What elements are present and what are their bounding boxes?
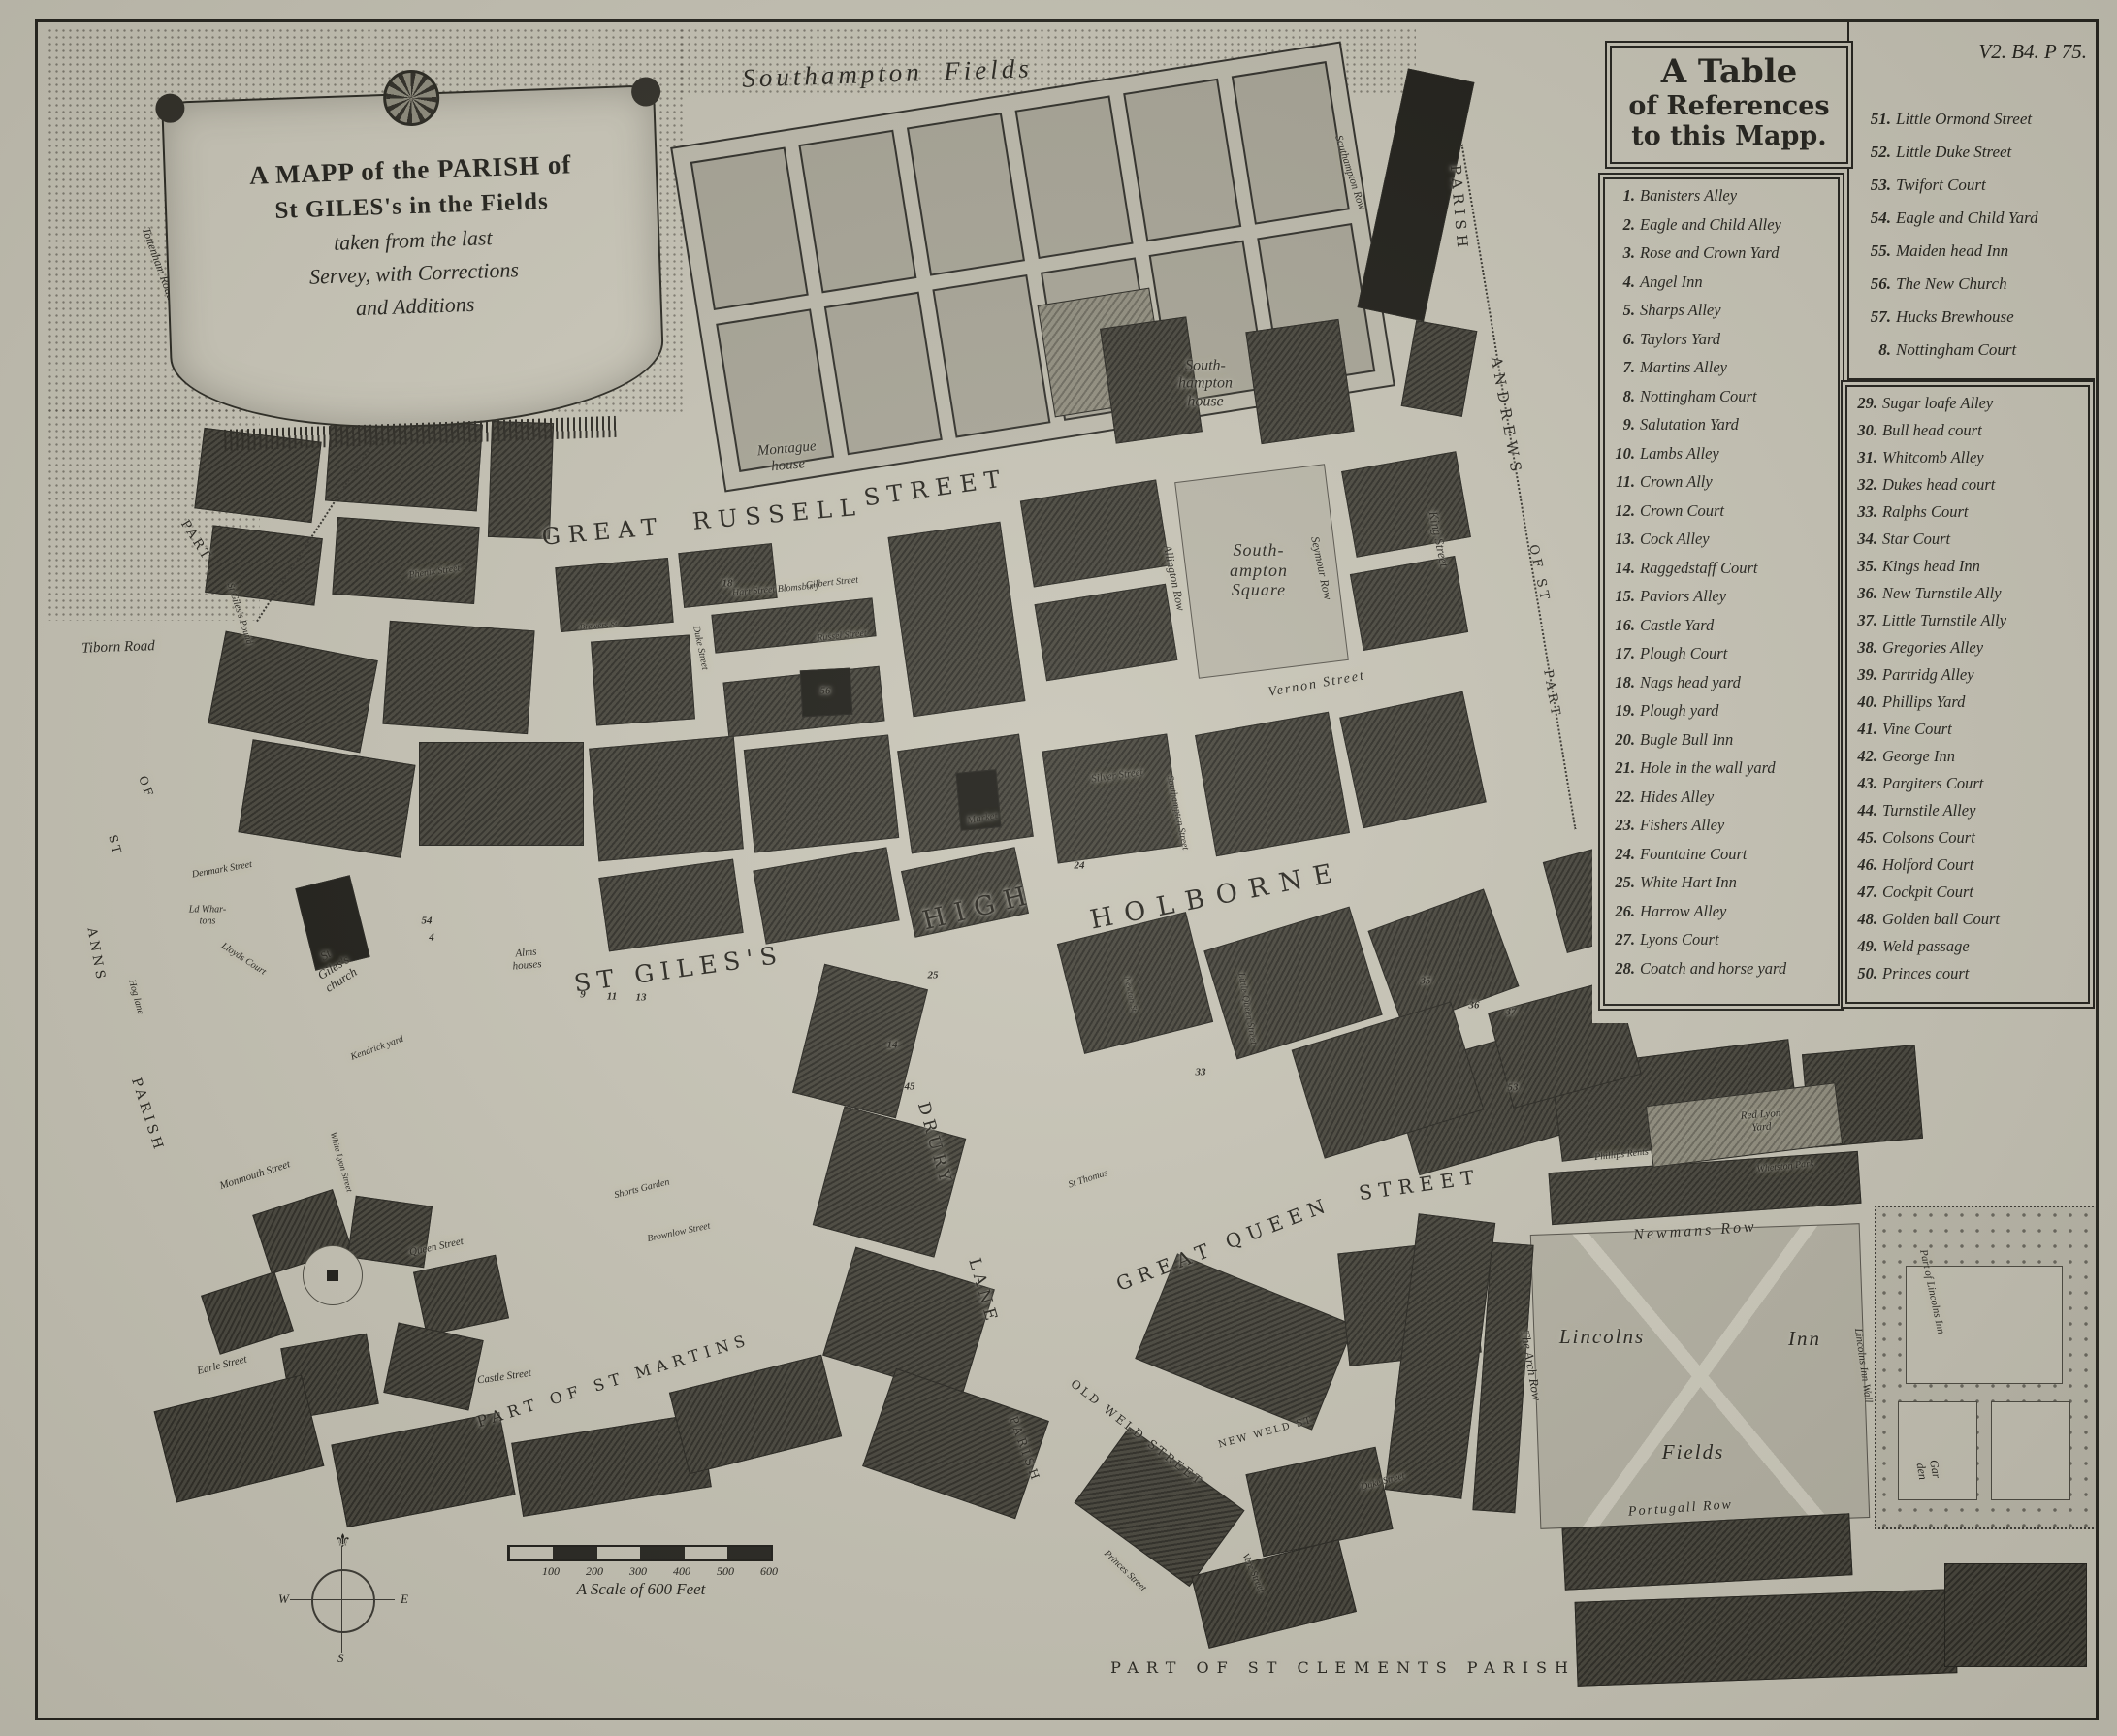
map-label-lincolns: Lincolns [1559, 1325, 1645, 1348]
reference-item: 20.Bugle Bull Inn [1612, 730, 1837, 759]
reference-item-label: Holford Court [1882, 855, 1973, 875]
reference-item: 25.White Hart Inn [1612, 873, 1837, 902]
reference-item: 52.Little Duke Street [1868, 143, 2083, 176]
building-block [589, 736, 744, 862]
reference-item-label: Hides Alley [1640, 788, 1714, 807]
map-label-hog-lane: Hog lane [126, 979, 146, 1016]
reference-item: 10.Lambs Alley [1612, 444, 1837, 473]
reference-item-label: Castle Yard [1640, 616, 1714, 635]
reference-item-label: Fountaine Court [1640, 845, 1747, 864]
reference-item: 37.Little Turnstile Ally [1854, 611, 2087, 638]
reference-item: 53.Twifort Court [1868, 176, 2083, 209]
reference-item-number: 39. [1854, 665, 1877, 685]
reference-item-label: Maiden head Inn [1896, 241, 2008, 261]
map-label-castle-street: Castle Street [476, 1367, 531, 1387]
garden-parterre [1015, 95, 1134, 259]
reference-item: 9.Salutation Yard [1612, 415, 1837, 444]
reference-item: 48.Golden ball Court [1854, 910, 2087, 937]
compass-west-label: W [278, 1591, 289, 1607]
reference-item-number: 46. [1854, 855, 1877, 875]
reference-item-number: 29. [1854, 394, 1877, 413]
reference-item-number: 25. [1612, 873, 1635, 892]
reference-item-number: 28. [1612, 959, 1635, 979]
reference-item: 46.Holford Court [1854, 855, 2087, 883]
reference-item-label: Turnstile Alley [1882, 801, 1975, 820]
mask-ornament-icon [382, 69, 440, 127]
reference-item: 29.Sugar loafe Alley [1854, 394, 2087, 421]
map-label-37: 37 [1506, 1007, 1517, 1019]
building-block [1350, 556, 1468, 651]
reference-table: V2. B4. P 75. A Table of References to t… [1592, 22, 2095, 1023]
building-block [419, 742, 584, 846]
reference-item: 35.Kings head Inn [1854, 557, 2087, 584]
map-label-brewers-st: Brewers St [579, 619, 618, 632]
map-label-25: 25 [928, 970, 939, 982]
reference-item: 38.Gregories Alley [1854, 638, 2087, 665]
reference-item-label: Princes court [1882, 964, 1969, 983]
reference-item: 34.Star Court [1854, 530, 2087, 557]
reference-item-number: 22. [1612, 788, 1635, 807]
reference-item-label: Lambs Alley [1640, 444, 1719, 464]
reference-item-number: 10. [1612, 444, 1635, 464]
garden-parterre [1123, 79, 1241, 242]
map-label-white-lyon-street: White Lyon Street [328, 1131, 355, 1193]
reference-list-1-28: 1.Banisters Alley2.Eagle and Child Alley… [1598, 173, 1844, 1011]
reference-item-label: Crown Ally [1640, 472, 1713, 492]
scale-caption: A Scale of 600 Feet [507, 1580, 775, 1599]
building-block [205, 525, 323, 605]
reference-item-number: 2. [1612, 215, 1635, 235]
reference-item-label: New Turnstile Ally [1882, 584, 2002, 603]
reference-item-label: Pargiters Court [1882, 774, 1983, 793]
reference-item: 50.Princes court [1854, 964, 2087, 991]
reference-item-number: 34. [1854, 530, 1877, 549]
building-block [792, 964, 928, 1119]
map-label-36: 36 [1469, 1000, 1480, 1013]
building-block [888, 522, 1026, 717]
seven-dials-circus [303, 1245, 363, 1305]
reference-item-number: 26. [1612, 902, 1635, 921]
map-label-gilbert-street: Gilbert Street [805, 574, 858, 591]
plate-reference: V2. B4. P 75. [1912, 40, 2087, 64]
building-block [744, 734, 899, 852]
reference-item-label: Banisters Alley [1640, 186, 1737, 206]
reference-item-label: Rose and Crown Yard [1640, 243, 1780, 263]
compass-north-fleur-icon: ⚜ [335, 1530, 351, 1553]
reference-item: 40.Phillips Yard [1854, 692, 2087, 720]
reference-item-number: 23. [1612, 816, 1635, 835]
map-label-24: 24 [1075, 860, 1085, 873]
reference-item: 14.Raggedstaff Court [1612, 559, 1837, 588]
map-label-earle-street: Earle Street [196, 1354, 248, 1378]
reference-item-label: Bugle Bull Inn [1640, 730, 1733, 750]
compass-circle [311, 1569, 375, 1633]
map-label-russell: RUSSELL [691, 495, 864, 536]
reference-item: 8.Nottingham Court [1612, 387, 1837, 416]
building-block [1135, 1253, 1354, 1430]
garden-parterre [1232, 61, 1350, 225]
reference-item-label: Little Turnstile Ally [1882, 611, 2006, 630]
reference-item-number: 17. [1612, 644, 1635, 663]
reference-item-number: 15. [1612, 587, 1635, 606]
reference-item-label: Star Court [1882, 530, 1950, 549]
compass-axis [290, 1599, 395, 1600]
reference-item-label: Crown Court [1640, 501, 1724, 521]
reference-item-number: 18. [1612, 673, 1635, 692]
map-label-tiborn-road: Tiborn Road [81, 638, 155, 658]
map-label-33: 33 [1196, 1067, 1206, 1079]
building-block [753, 847, 899, 944]
map-label-montague-house: Montague house [756, 438, 818, 477]
reference-item: 41.Vine Court [1854, 720, 2087, 747]
reference-item-number: 14. [1612, 559, 1635, 578]
reference-item-label: Nottingham Court [1896, 340, 2016, 360]
map-label-denmark-street: Denmark Street [191, 859, 253, 881]
reference-item: 6.Taylors Yard [1612, 330, 1837, 359]
scale-tick-label: 200 [580, 1564, 609, 1579]
map-label-45: 45 [905, 1081, 915, 1094]
reference-item-label: Hucks Brewhouse [1896, 307, 2014, 327]
reference-item-label: Phillips Yard [1882, 692, 1965, 712]
reference-item-number: 45. [1854, 828, 1877, 848]
building-block [711, 597, 876, 653]
reference-item-number: 27. [1612, 930, 1635, 949]
reference-item-label: Fishers Alley [1640, 816, 1724, 835]
reference-item-label: Sharps Alley [1640, 301, 1721, 320]
building-block [598, 859, 743, 952]
reference-item: 39.Partridg Alley [1854, 665, 2087, 692]
reference-item-label: Coatch and horse yard [1640, 959, 1786, 979]
lincolns-inn-fields-green [1530, 1223, 1870, 1529]
compass-south-label: S [337, 1651, 344, 1666]
reference-item: 56.The New Church [1868, 274, 2083, 307]
map-label-anns: ANNS [83, 927, 108, 984]
garden-parterre [798, 130, 916, 294]
reference-item: 47.Cockpit Court [1854, 883, 2087, 910]
scale-tick-label: 600 [754, 1564, 784, 1579]
reference-table-title: A Table of References to this Mapp. [1605, 41, 1853, 169]
reference-item-label: Little Duke Street [1896, 143, 2011, 162]
map-label-great: GREAT [541, 514, 666, 552]
reference-item-label: Nags head yard [1640, 673, 1741, 692]
building-block [383, 1322, 483, 1410]
reference-item-label: Vine Court [1882, 720, 1952, 739]
reference-item: 2.Eagle and Child Alley [1612, 215, 1837, 244]
reference-item: 57.Hucks Brewhouse [1868, 307, 2083, 340]
reference-item-number: 40. [1854, 692, 1877, 712]
reference-item-number: 44. [1854, 801, 1877, 820]
reference-item: 13.Cock Alley [1612, 530, 1837, 559]
building-block [1245, 319, 1354, 444]
map-label-vernon-street: Vernon Street [1267, 668, 1367, 700]
reference-item-number: 4. [1612, 273, 1635, 292]
building-block [1944, 1563, 2087, 1667]
building-block [1401, 320, 1478, 417]
reference-item-label: Kings head Inn [1882, 557, 1980, 576]
reference-item-number: 32. [1854, 475, 1877, 495]
garden-parterre [690, 146, 809, 310]
reference-item-label: Ralphs Court [1882, 502, 1968, 522]
reference-item-number: 36. [1854, 584, 1877, 603]
map-label-andrews: ANDREWS [1488, 355, 1525, 478]
reference-item-number: 31. [1854, 448, 1877, 467]
map-label-of: OF [135, 774, 155, 800]
reference-item: 19.Plough yard [1612, 701, 1837, 730]
reference-item-number: 35. [1854, 557, 1877, 576]
map-label-st-giles-s: ST GILES'S [572, 942, 785, 999]
parish-boundary-line [1461, 145, 1577, 830]
building-block [154, 1374, 325, 1502]
map-label-parish: PARISH [128, 1076, 167, 1154]
reference-item-number: 41. [1854, 720, 1877, 739]
reference-item-label: Taylors Yard [1640, 330, 1720, 349]
building-block [1341, 451, 1471, 557]
reference-item-number: 7. [1612, 358, 1635, 377]
map-label-shorts-garden: Shorts Garden [613, 1176, 670, 1201]
reference-item-label: Bull head court [1882, 421, 1982, 440]
map-label-35: 35 [1421, 976, 1431, 988]
reference-list-29-50: 29.Sugar loafe Alley30.Bull head court31… [1841, 380, 2095, 1009]
table-title-line: of References [1607, 91, 1851, 121]
building-block [1057, 912, 1213, 1054]
reference-item-label: George Inn [1882, 747, 1955, 766]
reference-item-number: 50. [1854, 964, 1877, 983]
reference-item: 22.Hides Alley [1612, 788, 1837, 817]
reference-item-label: Cockpit Court [1882, 883, 1973, 902]
reference-item: 11.Crown Ally [1612, 472, 1837, 501]
reference-item-number: 53. [1868, 176, 1891, 195]
reference-item-label: Whitcomb Alley [1882, 448, 1984, 467]
reference-item-label: Little Ormond Street [1896, 110, 2032, 129]
reference-item-number: 37. [1854, 611, 1877, 630]
reference-item: 3.Rose and Crown Yard [1612, 243, 1837, 273]
reference-item: 36.New Turnstile Ally [1854, 584, 2087, 611]
reference-item-number: 12. [1612, 501, 1635, 521]
title-cartouche: A MAPP of the PARISH of St GILES's in th… [161, 84, 666, 435]
reference-item-number: 20. [1612, 730, 1635, 750]
reference-item: 51.Little Ormond Street [1868, 110, 2083, 143]
building-block [201, 1271, 294, 1355]
reference-item-number: 33. [1854, 502, 1877, 522]
reference-item-label: Partridg Alley [1882, 665, 1974, 685]
reference-item: 31.Whitcomb Alley [1854, 448, 2087, 475]
reference-item-number: 42. [1854, 747, 1877, 766]
building-block [1245, 1447, 1393, 1558]
garden-parterre [907, 113, 1025, 276]
reference-item: 42.George Inn [1854, 747, 2087, 774]
reference-item: 15.Paviors Alley [1612, 587, 1837, 616]
reference-item-number: 16. [1612, 616, 1635, 635]
reference-item-label: The New Church [1896, 274, 2007, 294]
map-label-street: STREET [862, 466, 1010, 512]
reference-item: 17.Plough Court [1612, 644, 1837, 673]
scale-bar: 100200300400500600 A Scale of 600 Feet [507, 1545, 775, 1607]
reference-item-label: Golden ball Court [1882, 910, 2000, 929]
map-label-south-ampton-square: South- ampton Square [1230, 540, 1288, 600]
building-block [382, 621, 534, 734]
map-label-part-of-st-clements-parish: PART OF ST CLEMENTS PARISH [1110, 1659, 1576, 1677]
reference-item-number: 8. [1868, 340, 1891, 360]
reference-item-number: 3. [1612, 243, 1635, 263]
reference-item-label: Angel Inn [1640, 273, 1703, 292]
reference-item-number: 54. [1868, 209, 1891, 228]
reference-item-label: Paviors Alley [1640, 587, 1726, 606]
garden-parterre [1898, 1401, 1977, 1500]
building-block [678, 543, 777, 608]
reference-item: 1.Banisters Alley [1612, 186, 1837, 215]
map-label-13: 13 [636, 992, 647, 1005]
reference-item-label: Raggedstaff Court [1640, 559, 1757, 578]
map-label-monmouth-street: Monmouth Street [218, 1158, 292, 1192]
map-label-duke-street: Duke Street [690, 625, 711, 671]
map-label-alms-houses: Alms houses [511, 946, 542, 973]
reference-item-number: 13. [1612, 530, 1635, 549]
map-label-red-lyon-yard: Red Lyon Yard [1740, 1108, 1781, 1135]
reference-item-number: 38. [1854, 638, 1877, 658]
reference-item: 45.Colsons Court [1854, 828, 2087, 855]
building-block [669, 1355, 842, 1475]
map-label-9: 9 [580, 989, 586, 1002]
reference-item-label: Nottingham Court [1640, 387, 1757, 406]
reference-item-number: 47. [1854, 883, 1877, 902]
reference-item-number: 11. [1612, 472, 1635, 492]
reference-item: 8.Nottingham Court [1868, 340, 2083, 373]
reference-item: 30.Bull head court [1854, 421, 2087, 448]
reference-item-label: Weld passage [1882, 937, 1970, 956]
reference-item-number: 30. [1854, 421, 1877, 440]
building-block [1020, 479, 1170, 587]
reference-item-number: 51. [1868, 110, 1891, 129]
table-title-line: A Table [1607, 52, 1851, 91]
reference-item-label: Colsons Court [1882, 828, 1975, 848]
reference-item-number: 9. [1612, 415, 1635, 434]
reference-item-number: 5. [1612, 301, 1635, 320]
reference-item-label: Hole in the wall yard [1640, 758, 1776, 778]
reference-item-number: 48. [1854, 910, 1877, 929]
reference-item-label: Cock Alley [1640, 530, 1710, 549]
reference-item: 55.Maiden head Inn [1868, 241, 2083, 274]
map-label-princes-street: Princes Street [1102, 1548, 1148, 1593]
reference-list-51-57: 51.Little Ormond Street52.Little Duke St… [1856, 98, 2089, 379]
map-label-st-thomas: St Thomas [1067, 1168, 1108, 1191]
building-block [1035, 584, 1178, 681]
reference-item-number: 57. [1868, 307, 1891, 327]
reference-item: 21.Hole in the wall yard [1612, 758, 1837, 788]
building-block [238, 739, 415, 857]
map-label-inn: Inn [1788, 1327, 1821, 1350]
reference-item: 16.Castle Yard [1612, 616, 1837, 645]
map-label-south-hampton-house: South- hampton house [1178, 357, 1233, 410]
scale-tick-label: 300 [624, 1564, 653, 1579]
map-label-part: PART [1539, 668, 1562, 720]
reference-item: 18.Nags head yard [1612, 673, 1837, 702]
map-label-brownlow-street: Brownlow Street [646, 1220, 711, 1244]
reference-item: 49.Weld passage [1854, 937, 2087, 964]
reference-item: 44.Turnstile Alley [1854, 801, 2087, 828]
building-block [1042, 734, 1182, 864]
building-block [1191, 1539, 1357, 1649]
reference-item: 27.Lyons Court [1612, 930, 1837, 959]
map-label-18: 18 [722, 578, 733, 591]
building-block [1195, 712, 1350, 856]
reference-item-label: Lyons Court [1640, 930, 1719, 949]
map-label-11: 11 [607, 991, 617, 1004]
reference-item-number: 21. [1612, 758, 1635, 778]
reference-item-number: 43. [1854, 774, 1877, 793]
scale-tick-label: 500 [711, 1564, 740, 1579]
reference-item-label: Eagle and Child Alley [1640, 215, 1781, 235]
reference-item-number: 24. [1612, 845, 1635, 864]
reference-item-label: Plough yard [1640, 701, 1718, 721]
map-label-4: 4 [429, 932, 434, 945]
reference-item: 4.Angel Inn [1612, 273, 1837, 302]
reference-item-number: 49. [1854, 937, 1877, 956]
building-block [332, 517, 479, 604]
reference-item: 33.Ralphs Court [1854, 502, 2087, 530]
lincolns-inn-garden [1875, 1206, 2098, 1529]
scale-tick-label: 100 [536, 1564, 565, 1579]
building-block [331, 1412, 515, 1527]
reference-item: 24.Fountaine Court [1612, 845, 1837, 874]
reference-item: 32.Dukes head court [1854, 475, 2087, 502]
building-block [1339, 691, 1486, 828]
reference-item-label: Martins Alley [1640, 358, 1727, 377]
reference-item: 54.Eagle and Child Yard [1868, 209, 2083, 241]
reference-item-label: Eagle and Child Yard [1896, 209, 2038, 228]
table-title-line: to this Mapp. [1607, 121, 1851, 151]
reference-item-number: 56. [1868, 274, 1891, 294]
compass-east-label: E [401, 1591, 408, 1607]
reference-item-number: 52. [1868, 143, 1891, 162]
reference-item-label: Gregories Alley [1882, 638, 1983, 658]
reference-item: 26.Harrow Alley [1612, 902, 1837, 931]
building-block [1575, 1589, 1958, 1687]
garden-parterre [824, 292, 943, 456]
banner-knot-icon [155, 93, 185, 123]
scale-tick-label: 400 [667, 1564, 696, 1579]
reference-item: 43.Pargiters Court [1854, 774, 2087, 801]
reference-item: 23.Fishers Alley [1612, 816, 1837, 845]
reference-item-label: White Hart Inn [1640, 873, 1737, 892]
building-block [591, 635, 695, 726]
reference-item-number: 55. [1868, 241, 1891, 261]
reference-item-number: 19. [1612, 701, 1635, 721]
map-label-53: 53 [1508, 1082, 1519, 1095]
reference-item-label: Plough Court [1640, 644, 1727, 663]
map-label-kendrick-yard: Kendrick yard [349, 1034, 405, 1063]
reference-item-number: 1. [1612, 186, 1635, 206]
map-label-fields: Fields [1662, 1440, 1725, 1463]
reference-item-label: Twifort Court [1896, 176, 1986, 195]
garden-parterre [932, 274, 1050, 438]
reference-item-label: Sugar loafe Alley [1882, 394, 1993, 413]
reference-item-number: 6. [1612, 330, 1635, 349]
reference-item: 7.Martins Alley [1612, 358, 1837, 387]
reference-item-number: 8. [1612, 387, 1635, 406]
reference-item-label: Harrow Alley [1640, 902, 1726, 921]
map-label-st: ST [105, 833, 123, 857]
reference-item: 12.Crown Court [1612, 501, 1837, 530]
reference-item-label: Dukes head court [1882, 475, 1995, 495]
building-block [413, 1255, 509, 1336]
map-label-54: 54 [422, 916, 433, 928]
reference-item: 28.Coatch and horse yard [1612, 959, 1837, 988]
garden-parterre [1991, 1401, 2070, 1500]
compass-rose: ⚜ W E S [284, 1538, 401, 1655]
map-label-of-st: OF ST [1524, 543, 1551, 604]
map-label-14: 14 [887, 1040, 898, 1052]
reference-item-label: Salutation Yard [1640, 415, 1739, 434]
